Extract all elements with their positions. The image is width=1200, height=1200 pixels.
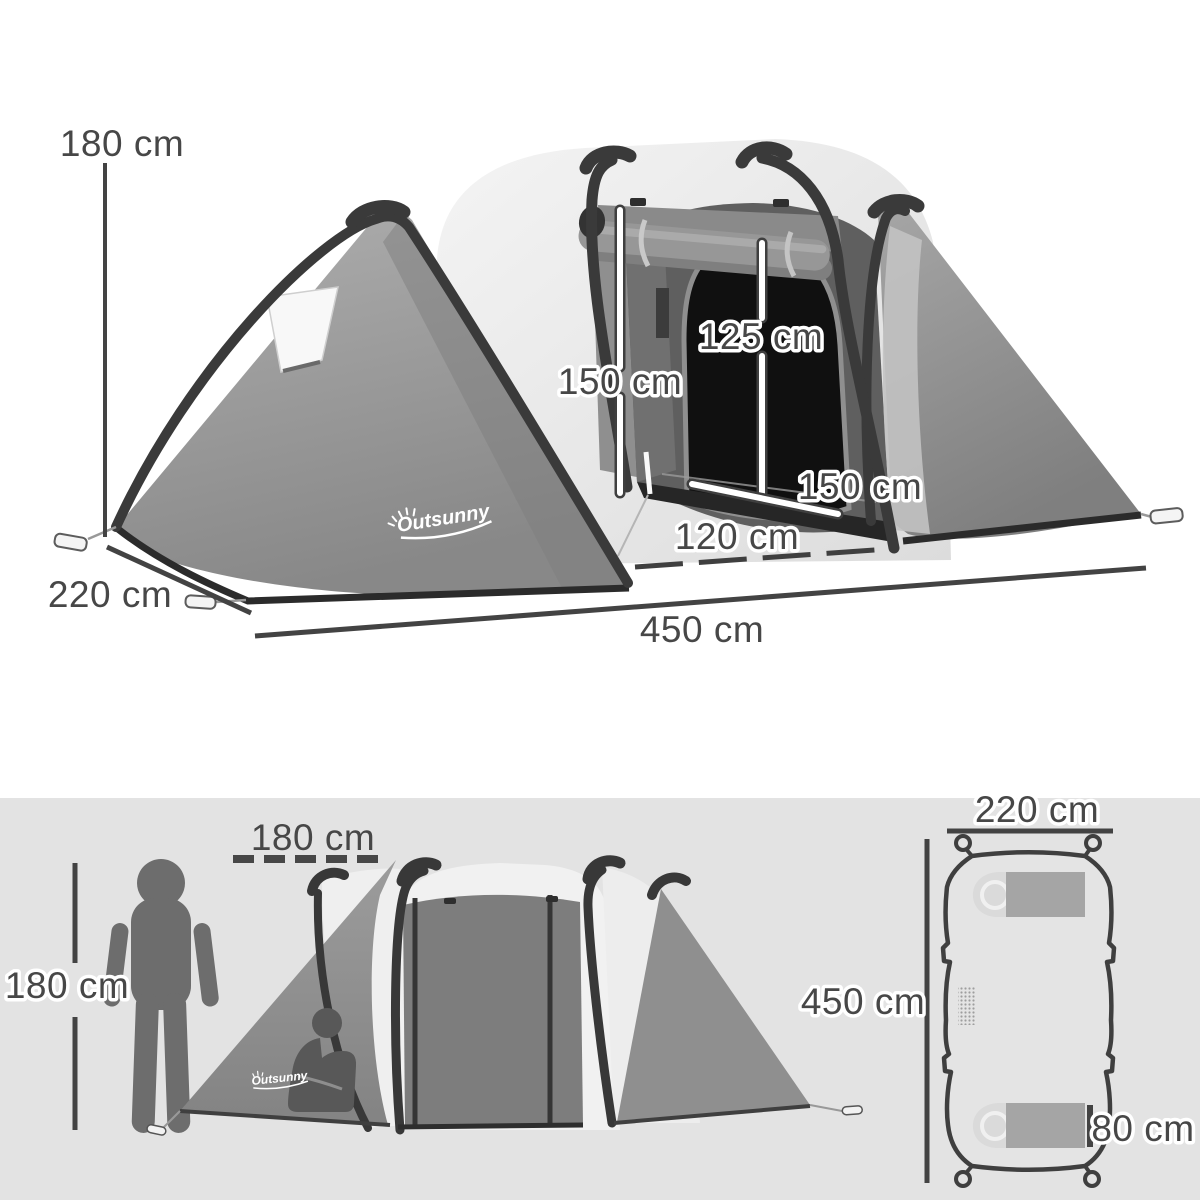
dim-label-sleeping-bag-width: 80 cm [1091, 1108, 1194, 1149]
tent-perspective-view: Outsunny 180 cm [0, 0, 1200, 795]
side-and-floorplan-view: 180 cm 180 cm [0, 795, 1200, 1200]
stake-loop [1086, 836, 1100, 850]
tent-dimension-diagram: Outsunny 180 cm [0, 0, 1200, 1200]
dim-label-total-height: 180 cm [60, 123, 184, 164]
guy-line [88, 527, 116, 539]
dim-label-door-height: 125 cm [699, 316, 823, 357]
sleeping-bag-body [1006, 1103, 1085, 1148]
dim-porch-length: 180 cm [233, 817, 378, 859]
vent-mesh [958, 987, 976, 1025]
flap-clip-right [773, 199, 789, 207]
panel-ground-skirt [398, 1125, 583, 1127]
sleeping-bag-bottom [973, 1103, 1085, 1148]
dim-label-total-width: 450 cm [640, 609, 764, 650]
person-torso [131, 898, 191, 1010]
stake-loop [956, 836, 970, 850]
dim-label-door-width: 120 cm [675, 516, 799, 557]
side-dark-panel [403, 895, 583, 1127]
person-left-leg [131, 993, 159, 1134]
sleeping-bag-body [1006, 872, 1085, 917]
dim-label-person-height: 180 cm [5, 965, 129, 1006]
sitting-person-head [312, 1008, 342, 1038]
dim-label-inner-room-width: 150 cm [798, 466, 922, 507]
stake-icon [842, 1106, 863, 1115]
stake-loop [956, 1172, 970, 1186]
stake-loop [1085, 1172, 1099, 1186]
sleeping-bag-top [973, 872, 1085, 917]
panel-hook [444, 898, 456, 904]
stake-icon [1150, 508, 1183, 524]
dim-sleeping-bag-width: 80 cm [1090, 1105, 1195, 1149]
dim-label-floorplan-length: 450 cm [801, 981, 925, 1022]
inner-window-slit [656, 288, 669, 338]
flap-clip-left [630, 198, 646, 206]
stake-icon [54, 533, 88, 551]
dim-label-porch-length: 180 cm [251, 817, 375, 858]
dim-label-floorplan-width: 220 cm [975, 795, 1099, 830]
dim-label-inner-height: 150 cm [558, 361, 682, 402]
dim-label-depth: 220 cm [48, 574, 172, 615]
panel-hook [546, 896, 558, 902]
